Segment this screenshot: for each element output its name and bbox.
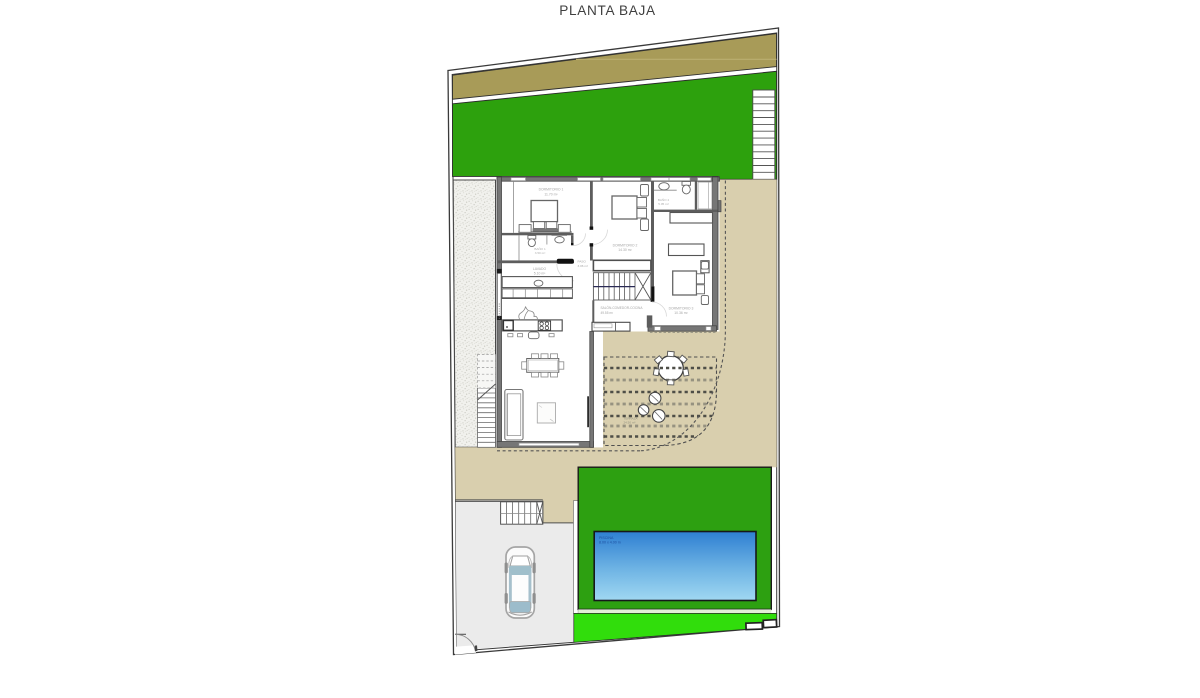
svg-text:3.06 m²: 3.06 m² <box>578 264 589 268</box>
svg-text:LAVADO: LAVADO <box>533 267 547 271</box>
svg-text:8.00 x 4.00 m: 8.00 x 4.00 m <box>599 540 621 544</box>
svg-text:14.30 m²: 14.30 m² <box>618 248 632 252</box>
svg-text:49.55 m²: 49.55 m² <box>601 311 614 315</box>
svg-text:SALÓN-COMEDOR-COCINA: SALÓN-COMEDOR-COCINA <box>601 305 644 310</box>
svg-text:5.05 m²: 5.05 m² <box>658 202 669 206</box>
svg-text:PISCINA: PISCINA <box>599 536 614 540</box>
svg-text:10.36 m²: 10.36 m² <box>674 311 688 315</box>
svg-text:24.50 m²: 24.50 m² <box>624 421 636 425</box>
svg-text:3.50 m²: 3.50 m² <box>535 251 546 255</box>
svg-text:5.10 m²: 5.10 m² <box>534 272 546 276</box>
svg-text:DORMITORIO 3: DORMITORIO 3 <box>669 306 694 310</box>
svg-text:11.70 m²: 11.70 m² <box>544 193 558 197</box>
svg-text:DORMITORIO 2: DORMITORIO 2 <box>613 244 638 248</box>
svg-text:DORMITORIO 1: DORMITORIO 1 <box>539 188 564 192</box>
svg-text:PASO: PASO <box>578 260 587 264</box>
